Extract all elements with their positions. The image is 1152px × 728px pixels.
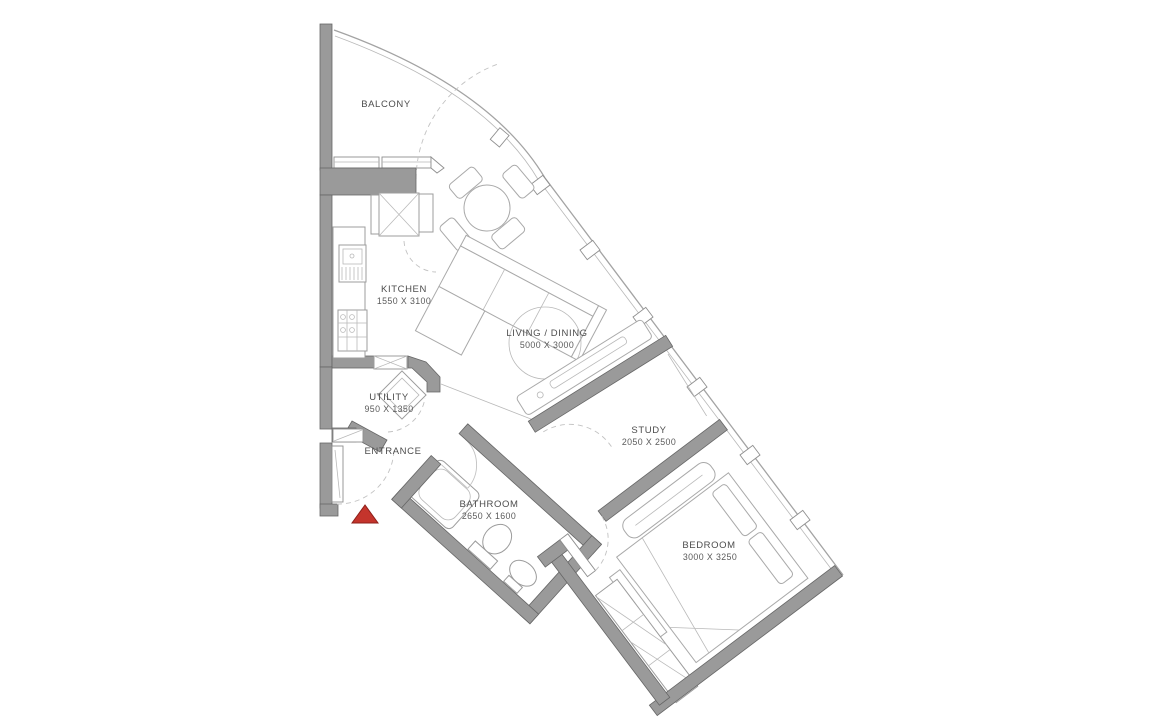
window-panel (334, 157, 379, 168)
bathroom-wing (392, 420, 602, 624)
wall-kitchen-left (320, 195, 332, 367)
floor-plan-canvas: BALCONY KITCHEN 1550 X 3100 LIVING / DIN… (0, 0, 1152, 728)
label-balcony: BALCONY (361, 99, 411, 110)
label-utility: UTILITY (369, 392, 409, 403)
bedroom-wing (537, 417, 843, 716)
glazing-jamb (490, 128, 509, 147)
label-entrance: ENTRANCE (364, 446, 421, 457)
balcony-window (334, 64, 498, 179)
glazing-jamb (740, 445, 760, 464)
label-kitchen: KITCHEN (381, 284, 427, 295)
glazing-jamb (580, 240, 600, 259)
dims-bedroom: 3000 X 3250 (683, 552, 737, 562)
dims-utility: 950 X 1350 (364, 404, 413, 414)
dims-kitchen: 1550 X 3100 (377, 296, 431, 306)
label-living: LIVING / DINING (506, 328, 587, 339)
glazing-jamb (687, 377, 707, 396)
label-study: STUDY (631, 425, 666, 436)
wall-bathroom-ne (459, 424, 601, 554)
floor-plan-drawing: BALCONY KITCHEN 1550 X 3100 LIVING / DIN… (0, 0, 1152, 728)
wall-entrance-left (320, 443, 332, 508)
dining-chair (501, 164, 535, 200)
label-bathroom: BATHROOM (460, 499, 519, 510)
kitchen-stove (338, 310, 367, 351)
window-end-cap (431, 157, 444, 173)
label-bedroom: BEDROOM (682, 540, 735, 551)
dims-study: 2050 X 2500 (622, 437, 676, 447)
wall-utility-left (320, 367, 332, 429)
wall-kitchen-north (320, 168, 416, 195)
kitchen-door-swing-arc (404, 241, 436, 272)
wall-entrance-cap (320, 504, 338, 516)
dims-living: 5000 X 3000 (520, 340, 574, 350)
window-panel (382, 157, 431, 168)
wall-balcony-left (320, 24, 332, 170)
dims-bathroom: 2650 X 1600 (462, 511, 516, 521)
kitchen-fridge (419, 194, 433, 232)
kitchen-shaft-side (371, 195, 379, 234)
entrance-marker (352, 505, 378, 523)
